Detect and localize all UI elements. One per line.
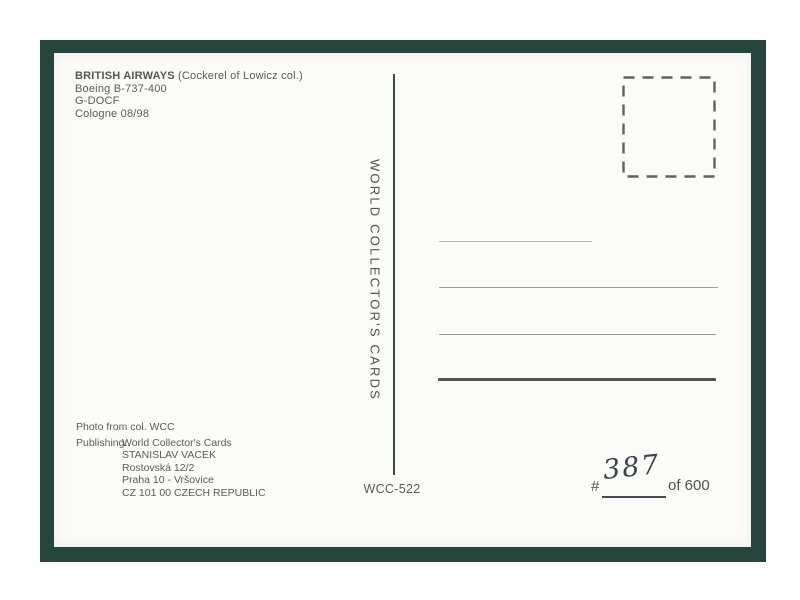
publisher-city: Praha 10 - Vršovice xyxy=(122,474,266,486)
collection-note: (Cockerel of Lowicz col.) xyxy=(178,70,303,82)
aircraft-registration: G-DOCF xyxy=(75,95,303,108)
address-line-4 xyxy=(438,378,716,381)
publisher-address-block: World Collector's Cards STANISLAV VACEK … xyxy=(122,437,266,499)
publishing-label: Publishing: xyxy=(76,437,127,449)
address-line-1 xyxy=(439,241,592,242)
publisher-name: World Collector's Cards xyxy=(122,437,266,449)
publisher-person: STANISLAV VACEK xyxy=(122,449,266,461)
address-line-2 xyxy=(439,287,718,288)
spine-divider-line xyxy=(393,74,395,475)
number-underline xyxy=(602,496,666,498)
edition-total: of 600 xyxy=(668,477,710,494)
postcard-surface: BRITISH AIRWAYS (Cockerel of Lowicz col.… xyxy=(54,53,751,547)
airline-name: BRITISH AIRWAYS xyxy=(75,70,175,82)
scanned-postcard-back: BRITISH AIRWAYS (Cockerel of Lowicz col.… xyxy=(0,0,800,600)
caption-block: BRITISH AIRWAYS (Cockerel of Lowicz col.… xyxy=(75,70,303,120)
handwritten-edition-number: 387 xyxy=(602,449,662,486)
publisher-country: CZ 101 00 CZECH REPUBLIC xyxy=(122,487,266,499)
stamp-box xyxy=(622,76,716,178)
spine-title: WORLD COLLECTOR'S CARDS xyxy=(368,159,383,401)
hash-symbol: # xyxy=(591,478,599,495)
card-reference-number: WCC-522 xyxy=(364,482,421,496)
publisher-street: Rostovská 12/2 xyxy=(122,462,266,474)
stamp-box-outline xyxy=(622,76,716,178)
caption-line-1: BRITISH AIRWAYS (Cockerel of Lowicz col.… xyxy=(75,70,303,83)
card-frame: BRITISH AIRWAYS (Cockerel of Lowicz col.… xyxy=(40,40,766,562)
place-and-date: Cologne 08/98 xyxy=(75,108,303,121)
address-line-3 xyxy=(439,334,716,335)
photo-credit: Photo from col. WCC xyxy=(76,421,175,433)
aircraft-type: Boeing B-737-400 xyxy=(75,83,303,96)
